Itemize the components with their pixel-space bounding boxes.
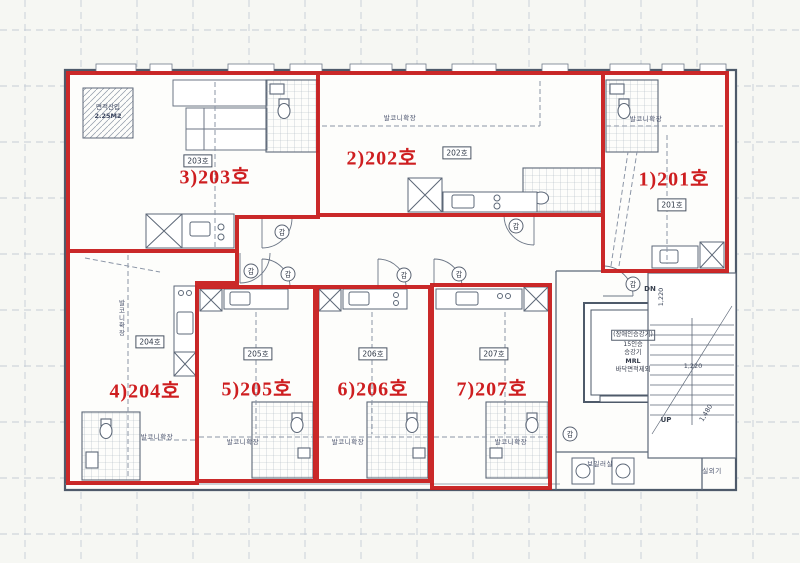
balcony-note-205: 발코니확장 bbox=[227, 436, 259, 446]
stair-dim-depth: 1,220 bbox=[684, 362, 703, 370]
elevator-line5: 바닥면적제외 bbox=[611, 366, 655, 375]
door-mark-boiler: 갑 bbox=[563, 427, 578, 442]
door-mark-205: 갑 bbox=[281, 267, 296, 282]
room-tag-204: 204호 bbox=[135, 335, 164, 348]
room-tag-207: 207호 bbox=[479, 347, 508, 360]
balcony-note-202: 발코니확장 bbox=[384, 112, 416, 122]
balcony-note-207: 발코니확장 bbox=[495, 436, 527, 446]
room-tag-203: 203호 bbox=[183, 154, 212, 167]
balcony-note-206: 발코니확장 bbox=[332, 436, 364, 446]
door-mark-203: 갑 bbox=[275, 225, 290, 240]
room-tag-206: 206호 bbox=[358, 347, 387, 360]
door-mark-202: 갑 bbox=[509, 219, 524, 234]
door-mark-204: 갑 bbox=[244, 264, 259, 279]
elevator-line2: 15인승 bbox=[611, 340, 655, 349]
room-tag-205: 205호 bbox=[243, 347, 272, 360]
area-inclusion-line2: 2.25M2 bbox=[94, 112, 121, 121]
elevator-line4: MRL bbox=[611, 357, 655, 366]
room-tag-202: 202호 bbox=[442, 146, 471, 159]
door-mark-206: 갑 bbox=[397, 268, 412, 283]
door-mark-207: 갑 bbox=[452, 267, 467, 282]
unit-label-206: 6)206호 bbox=[337, 373, 408, 402]
furniture-203 bbox=[173, 80, 267, 150]
elevator-spec: (장애인승강기) 15인승 승강기 MRL 바닥면적제외 bbox=[611, 330, 655, 375]
floor-plan-canvas: 1)201호 2)202호 3)203호 4)204호 5)205호 6)206… bbox=[0, 0, 800, 563]
outdoor-ac-label: 실외기 bbox=[702, 465, 721, 475]
unit-label-202: 2)202호 bbox=[346, 142, 417, 171]
unit-label-204: 4)204호 bbox=[109, 375, 180, 404]
elevator-line3: 승강기 bbox=[611, 349, 655, 358]
balcony-note-201: 발코니확장 bbox=[630, 113, 662, 123]
stair-up-label: UP bbox=[661, 416, 672, 424]
balcony-note-204-left: 발코니확장 bbox=[116, 299, 126, 337]
unit-label-207: 7)207호 bbox=[456, 373, 527, 402]
stair-down-label: DN bbox=[644, 285, 656, 293]
door-mark-201: 갑 bbox=[626, 277, 641, 292]
elevator-line1: (장애인승강기) bbox=[611, 330, 655, 341]
unit-label-205: 5)205호 bbox=[221, 373, 292, 402]
boiler-room-label: 보일러실 bbox=[587, 458, 613, 468]
balcony-note-204: 발코니확장 bbox=[141, 431, 173, 441]
stair-dim-width: 1,220 bbox=[657, 288, 665, 307]
room-tag-201: 201호 bbox=[657, 198, 686, 211]
area-inclusion-note: 면적산입 2.25M2 bbox=[94, 103, 121, 121]
area-inclusion-line1: 면적산입 bbox=[94, 103, 121, 112]
unit-label-201: 1)201호 bbox=[638, 163, 709, 192]
